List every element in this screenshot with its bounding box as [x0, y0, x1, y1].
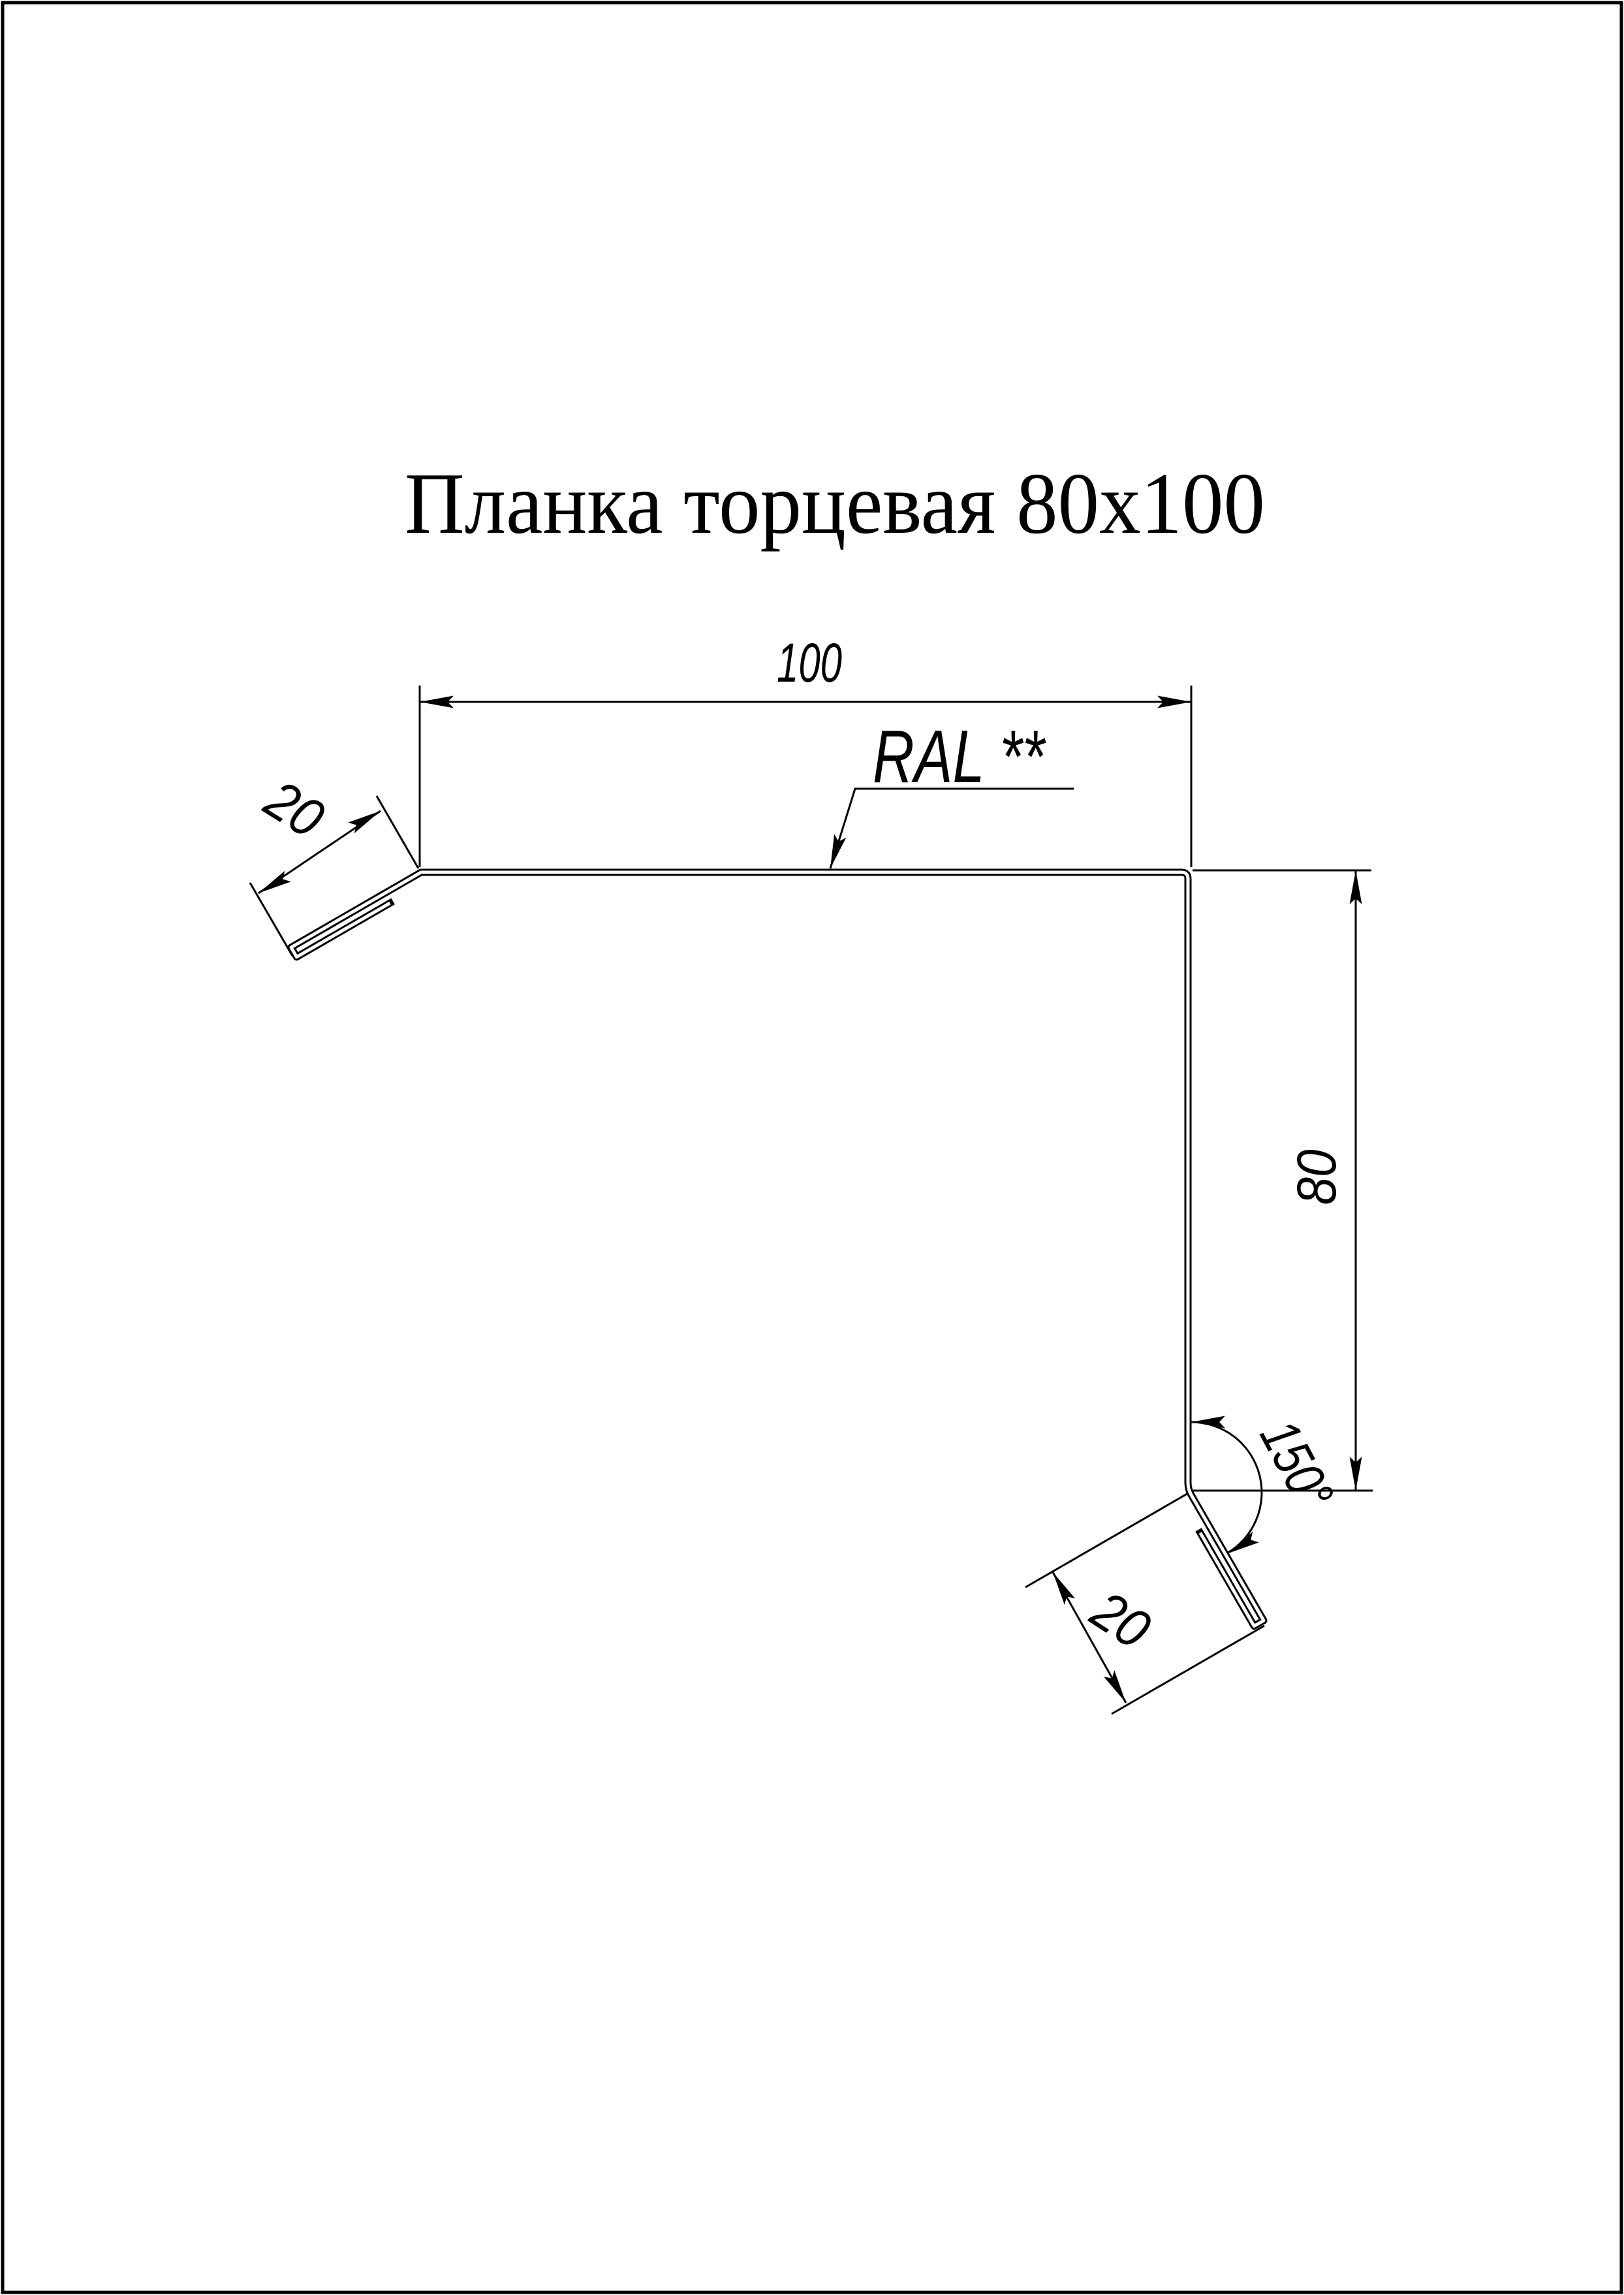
- page-title: Планка торцевая 80x100: [405, 455, 1265, 552]
- ext-line-20-top-tip: [250, 883, 292, 956]
- ral-leader-line: [830, 789, 1074, 868]
- ext-line-20-top-corner: [377, 796, 418, 868]
- profile-sheet-black: [291, 872, 1264, 1626]
- arrow-arc-top: [1191, 1416, 1225, 1429]
- dim-flange-top-label: 20: [255, 768, 335, 849]
- drawing-page: Планка торцевая 80x100: [0, 0, 1624, 2295]
- dimension-lines: [250, 686, 1373, 1714]
- ext-line-20-bottom-bend: [1025, 1493, 1189, 1587]
- dim-flange-bottom-label: 20: [1080, 1579, 1161, 1661]
- dim-height-label: 80: [1286, 1149, 1347, 1205]
- arrow-ral-leader: [824, 834, 846, 870]
- dim-angle-label: 150°: [1249, 1410, 1346, 1520]
- arrow-20bot-upper: [1048, 1569, 1075, 1605]
- dimension-labels: 100 20 80 150° 20 RAL **: [255, 632, 1347, 1661]
- dim-width-label: 100: [777, 632, 842, 693]
- page-border: [3, 3, 1621, 2292]
- technical-drawing-canvas: Планка торцевая 80x100: [0, 0, 1624, 2295]
- profile-sheet-gap: [291, 872, 1264, 1626]
- arrowheads: [255, 696, 1362, 1706]
- arrow-20bot-lower: [1104, 1670, 1131, 1706]
- material-ral-label: RAL **: [873, 716, 1046, 799]
- profile-outline: [291, 872, 1264, 1626]
